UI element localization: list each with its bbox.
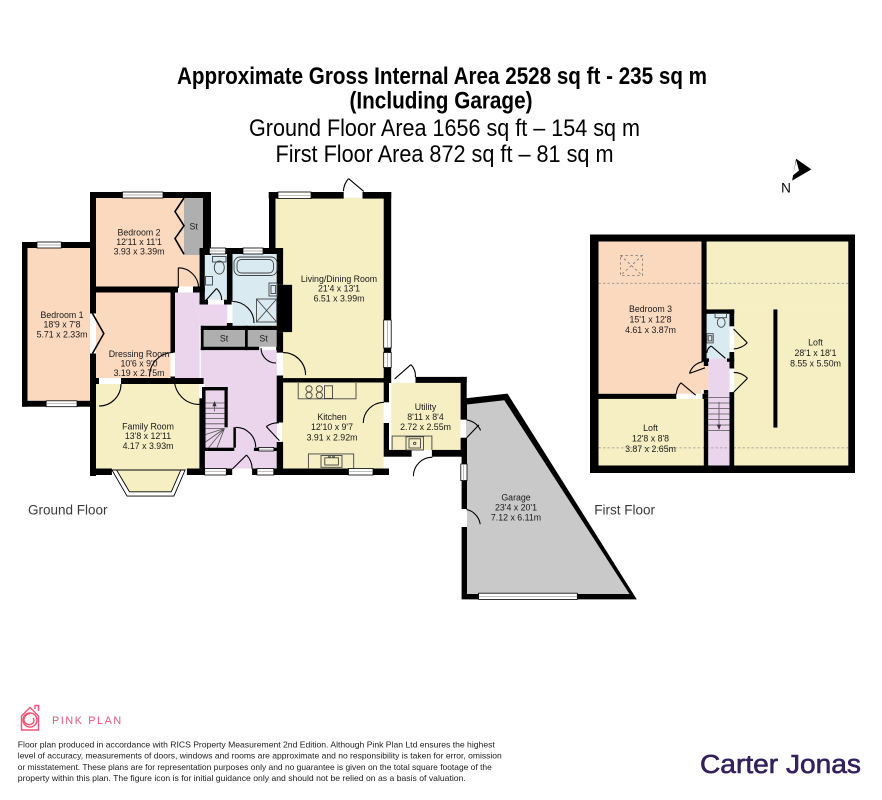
svg-text:3.19 x 2.75m: 3.19 x 2.75m <box>114 368 165 378</box>
svg-text:St: St <box>190 222 199 232</box>
svg-text:Loft: Loft <box>808 338 823 348</box>
svg-text:Ground Floor: Ground Floor <box>28 503 108 518</box>
svg-text:Carter Jonas: Carter Jonas <box>700 751 861 779</box>
svg-text:First Floor: First Floor <box>594 503 655 518</box>
svg-text:4.61 x 3.87m: 4.61 x 3.87m <box>625 325 676 335</box>
svg-text:8.55 x 5.50m: 8.55 x 5.50m <box>790 359 841 369</box>
svg-text:6.51 x 3.99m: 6.51 x 3.99m <box>314 293 365 303</box>
svg-text:3.91 x 2.92m: 3.91 x 2.92m <box>307 432 358 442</box>
svg-text:23'4 x 20'1: 23'4 x 20'1 <box>495 503 537 513</box>
svg-text:Approximate Gross Internal Are: Approximate Gross Internal Area 2528 sq … <box>177 63 707 90</box>
svg-text:Bedroom 1: Bedroom 1 <box>40 310 83 320</box>
svg-text:level of accuracy, measurement: level of accuracy, measurements of doors… <box>18 751 502 761</box>
svg-text:12'8 x 8'8: 12'8 x 8'8 <box>632 434 669 444</box>
svg-text:3.87 x 2.65m: 3.87 x 2.65m <box>625 444 676 454</box>
svg-text:Loft: Loft <box>643 423 658 433</box>
svg-text:Ground Floor Area 1656 sq ft –: Ground Floor Area 1656 sq ft – 154 sq m <box>249 115 640 142</box>
svg-text:12'11 x 11'1: 12'11 x 11'1 <box>116 237 162 247</box>
svg-text:13'8 x 12'11: 13'8 x 12'11 <box>125 431 171 441</box>
svg-text:Living/Dining Room: Living/Dining Room <box>301 274 377 284</box>
svg-text:8'11 x 8'4: 8'11 x 8'4 <box>407 412 444 422</box>
svg-text:3.93 x 3.39m: 3.93 x 3.39m <box>114 247 165 257</box>
svg-text:2.72 x 2.55m: 2.72 x 2.55m <box>400 422 451 432</box>
svg-text:28'1 x 18'1: 28'1 x 18'1 <box>795 348 837 358</box>
svg-text:7.12 x 6.11m: 7.12 x 6.11m <box>491 512 541 522</box>
svg-text:21'4 x 13'1: 21'4 x 13'1 <box>318 284 360 294</box>
svg-text:Utility: Utility <box>415 402 437 412</box>
svg-text:First Floor Area 872 sq ft – 8: First Floor Area 872 sq ft – 81 sq m <box>276 141 614 168</box>
svg-text:Floor plan produced in accorda: Floor plan produced in accordance with R… <box>18 739 496 749</box>
svg-text:12'10 x 9'7: 12'10 x 9'7 <box>311 422 353 432</box>
svg-text:5.71 x 2.33m: 5.71 x 2.33m <box>37 329 88 339</box>
svg-text:Bedroom 3: Bedroom 3 <box>629 304 672 314</box>
svg-text:St: St <box>220 334 229 344</box>
svg-text:N: N <box>781 181 791 196</box>
svg-text:18'9 x 7'8: 18'9 x 7'8 <box>43 320 80 330</box>
svg-text:property within this plan. The: property within this plan. The figure ic… <box>18 773 466 783</box>
svg-text:Family Room: Family Room <box>122 421 174 431</box>
svg-text:Dressing Room: Dressing Room <box>109 349 170 359</box>
svg-text:(Including Garage): (Including Garage) <box>350 88 533 115</box>
svg-text:PINK PLAN: PINK PLAN <box>52 715 123 727</box>
svg-text:10'6 x 9'0: 10'6 x 9'0 <box>120 359 157 369</box>
svg-text:St: St <box>259 334 268 344</box>
svg-text:Garage: Garage <box>501 493 530 503</box>
svg-text:Kitchen: Kitchen <box>317 412 346 422</box>
svg-text:4.17 x 3.93m: 4.17 x 3.93m <box>123 441 174 451</box>
svg-text:15'1 x 12'8: 15'1 x 12'8 <box>630 314 672 324</box>
svg-text:Bedroom 2: Bedroom 2 <box>117 228 160 238</box>
svg-text:or misstatement. These plans a: or misstatement. These plans are for rep… <box>18 762 492 772</box>
